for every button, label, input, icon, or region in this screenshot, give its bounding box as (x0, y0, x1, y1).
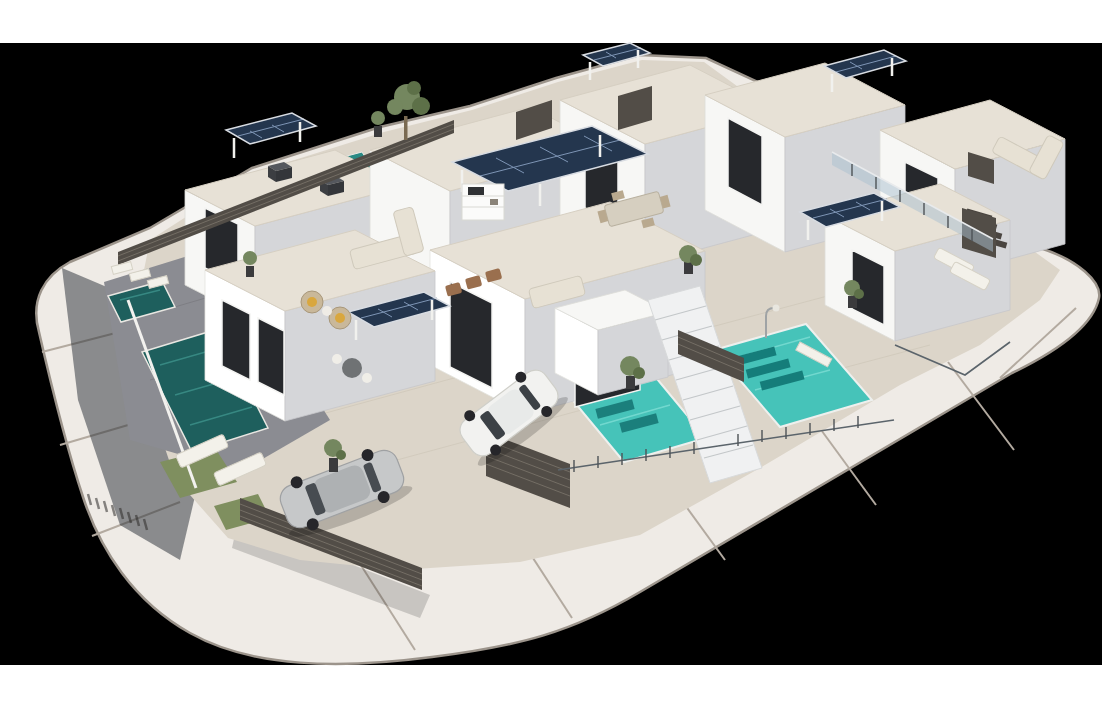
outdoor-kitchen (462, 184, 504, 220)
bbq-grill (468, 187, 484, 195)
render-canvas (0, 0, 1102, 711)
window (222, 300, 250, 380)
cushion (335, 313, 345, 323)
tree-trunk (404, 116, 408, 140)
side-table (322, 306, 332, 316)
architectural-render (0, 0, 1102, 711)
cushion (307, 297, 317, 307)
window (258, 318, 284, 395)
